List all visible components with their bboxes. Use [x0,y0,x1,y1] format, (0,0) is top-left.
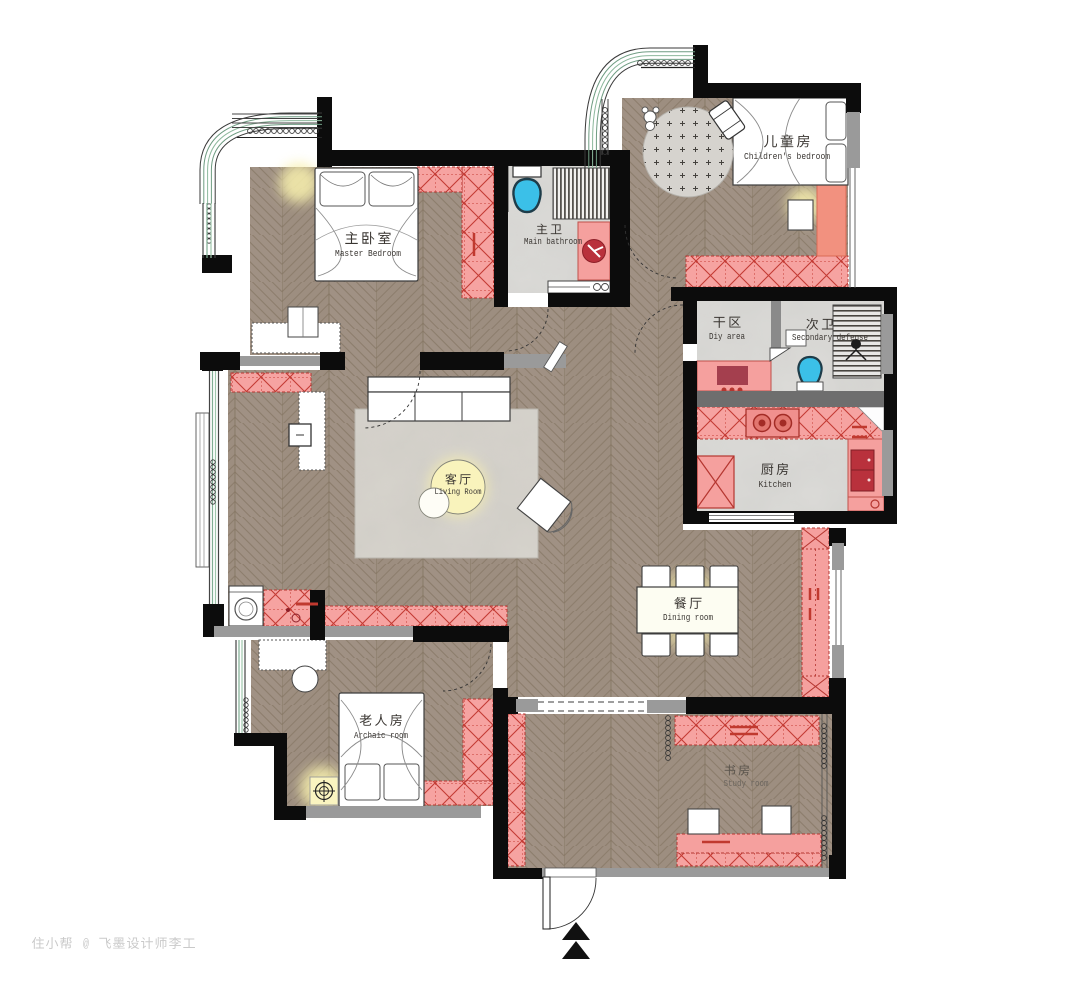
svg-text:Study room: Study room [724,779,769,789]
svg-text:Main bathroom: Main bathroom [524,237,582,247]
svg-text:Living Room: Living Room [435,487,482,497]
svg-text:@: @ [83,937,89,951]
svg-text:Dining room: Dining room [663,613,713,623]
svg-text:Archaic room: Archaic room [354,731,408,741]
svg-text:Kitchen: Kitchen [759,479,792,490]
svg-text:Master Bedroom: Master Bedroom [335,248,401,259]
svg-text:Diy area: Diy area [709,332,745,342]
svg-text:Children's bedroom: Children's bedroom [744,151,830,162]
svg-text:Secondary defense: Secondary defense [792,333,868,343]
